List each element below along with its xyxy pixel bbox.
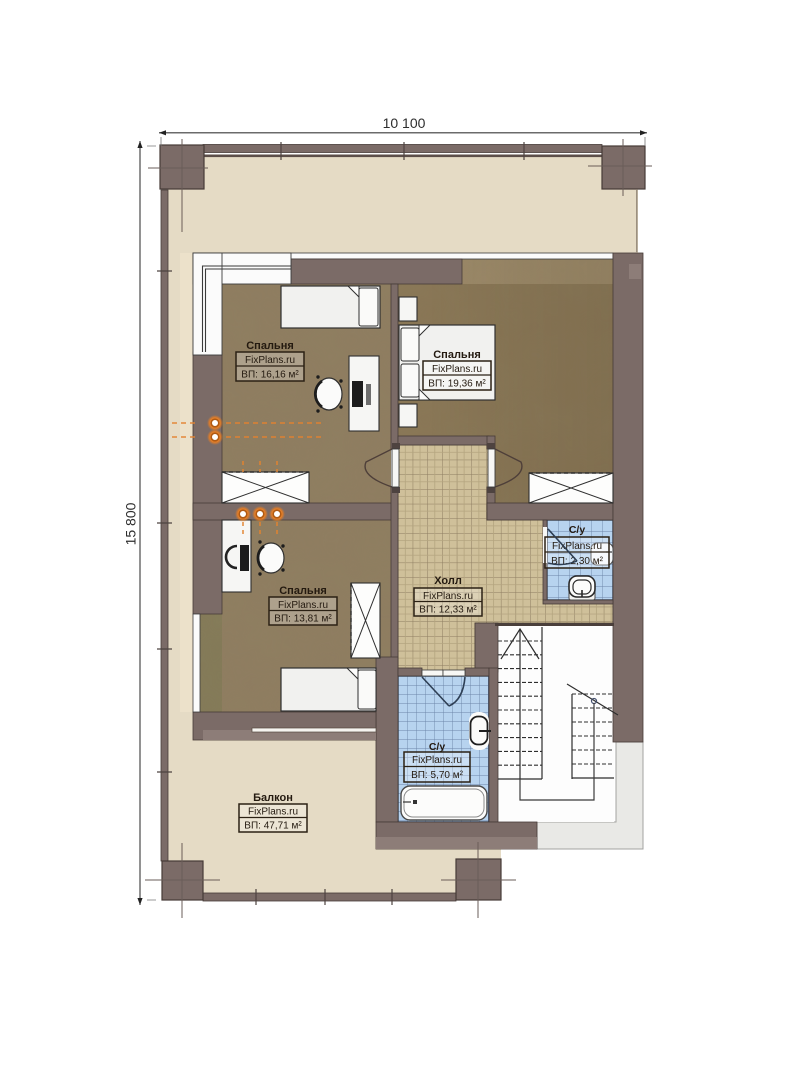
svg-text:Спальня: Спальня bbox=[279, 585, 327, 597]
svg-text:Спальня: Спальня bbox=[433, 349, 481, 361]
svg-text:FixPlans.ru: FixPlans.ru bbox=[245, 355, 295, 366]
svg-text:Спальня: Спальня bbox=[246, 340, 294, 352]
svg-text:10 100: 10 100 bbox=[383, 115, 426, 131]
svg-text:С/у: С/у bbox=[429, 741, 446, 753]
svg-text:ВП: 12,33 м²: ВП: 12,33 м² bbox=[419, 605, 477, 616]
svg-text:ВП: 13,81 м²: ВП: 13,81 м² bbox=[274, 614, 332, 625]
svg-text:Балкон: Балкон bbox=[253, 792, 293, 804]
svg-text:ВП: 47,71 м²: ВП: 47,71 м² bbox=[244, 821, 302, 832]
svg-text:ВП: 16,16 м²: ВП: 16,16 м² bbox=[241, 370, 299, 381]
svg-text:ВП: 19,36 м²: ВП: 19,36 м² bbox=[428, 379, 486, 390]
svg-text:FixPlans.ru: FixPlans.ru bbox=[423, 591, 473, 602]
svg-text:С/у: С/у bbox=[569, 524, 586, 536]
svg-text:FixPlans.ru: FixPlans.ru bbox=[278, 600, 328, 611]
svg-text:Холл: Холл bbox=[434, 575, 462, 587]
svg-text:FixPlans.ru: FixPlans.ru bbox=[412, 755, 462, 766]
svg-text:ВП: 5,70 м²: ВП: 5,70 м² bbox=[411, 770, 464, 781]
svg-text:15 800: 15 800 bbox=[123, 502, 139, 545]
svg-text:ВП: 2,30 м²: ВП: 2,30 м² bbox=[551, 556, 604, 567]
svg-text:FixPlans.ru: FixPlans.ru bbox=[248, 807, 298, 818]
svg-text:FixPlans.ru: FixPlans.ru bbox=[432, 364, 482, 375]
